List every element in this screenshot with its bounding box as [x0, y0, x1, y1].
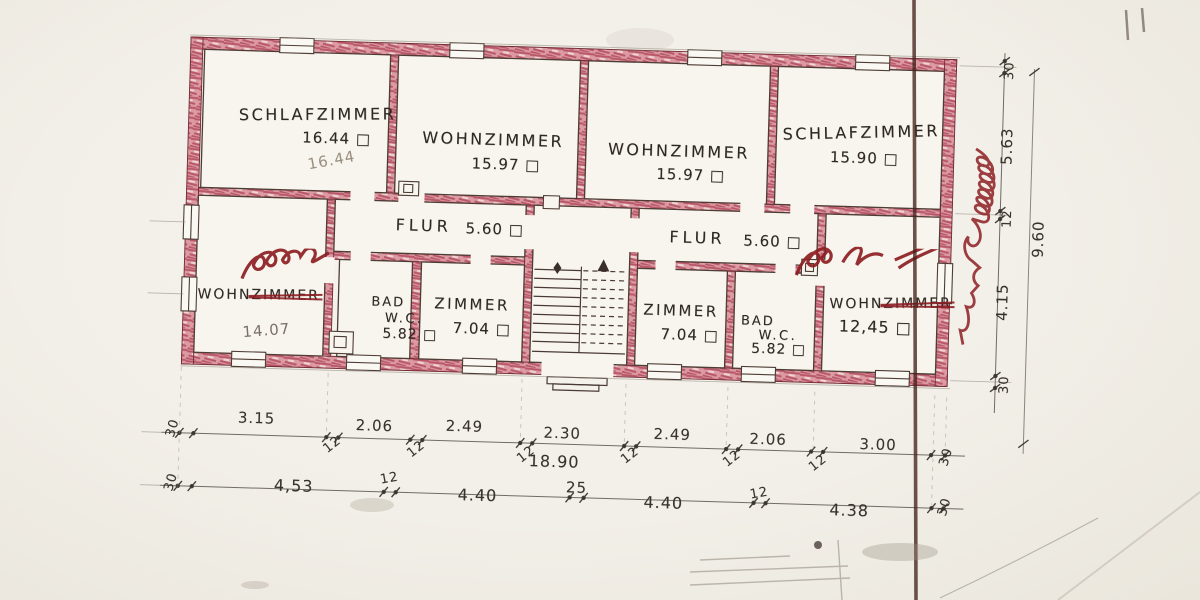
room-area-zimmer-1: 7.04 □ [452, 319, 511, 339]
floor-plan-svg [0, 0, 1200, 600]
crossed-out-text: ZIMMER [251, 287, 320, 304]
room-label-zimmer-1: ZIMMER [434, 294, 510, 314]
room-area-bad-1: 5.82 □ [382, 326, 437, 344]
crossed-out-text: ZIMMER [883, 296, 952, 312]
handwritten-red-script [238, 246, 339, 289]
dim-right-2: 12 [1000, 209, 1016, 228]
room-area-bad-2: 5.82 □ [751, 341, 806, 359]
dim-right-3: 4.15 [993, 283, 1012, 321]
room-label-wc-1: W.C. [385, 311, 424, 327]
dim-row1-13: 3.00 [859, 435, 897, 454]
dim-row1-total: 18.90 [528, 451, 579, 471]
dim-row2-1: 4,53 [274, 476, 314, 496]
room-label-schlafzimmer-2: SCHLAFZIMMER [782, 121, 940, 144]
room-area-schlafzimmer-2: 15.90 □ [830, 148, 899, 168]
room-area-wohnzimmer-1: 15.97 □ [471, 154, 540, 174]
room-label-flur-1: FLUR [395, 215, 452, 236]
dim-row1-9: 2.49 [653, 425, 691, 444]
scanned-floor-plan: SCHLAFZIMMER 16.44 □ 16.44 WOHNZIMMER 15… [0, 0, 1200, 600]
dim-right-total: 9.60 [1029, 220, 1048, 258]
room-area-flur-1: 5.60 □ [465, 219, 524, 239]
dim-row2-7: 4.38 [829, 500, 869, 520]
room-area-wohnzimmer-2: 15.97 □ [656, 165, 725, 185]
dim-row1-3: 2.06 [355, 416, 393, 435]
entrance-step [553, 384, 599, 391]
room-label-zimmer-2: ZIMMER [643, 301, 719, 321]
room-area-zimmer-2: 7.04 □ [660, 325, 719, 345]
dim-row1-5: 2.49 [445, 417, 483, 436]
room-area-schlafzimmer-1: 16.44 □ [302, 128, 371, 148]
dim-right-0: 30 [1002, 61, 1018, 80]
dim-right-4: 30 [997, 375, 1013, 394]
dim-row2-5: 4.40 [643, 493, 683, 513]
dim-row2-3: 4.40 [457, 485, 497, 505]
dim-right-1: 5.63 [997, 127, 1016, 165]
room-label-wohnzimmer-3: WOHNZIMMER [197, 286, 320, 303]
dim-row1-11: 2.06 [749, 430, 787, 449]
room-label-bad-1: BAD [371, 294, 405, 310]
dim-row1-1: 3.15 [238, 409, 276, 428]
room-area-flur-2: 5.60 □ [743, 231, 802, 251]
room-label-flur-2: FLUR [669, 227, 726, 248]
handwritten-red-script [794, 245, 955, 290]
dim-row2-4: 25 [566, 478, 588, 497]
room-area-wohnzimmer-3: 14.07 [242, 320, 291, 342]
room-label-schlafzimmer-1: SCHLAFZIMMER [239, 104, 396, 124]
dim-row1-7: 2.30 [543, 424, 581, 443]
plan-rotated-layer: SCHLAFZIMMER 16.44 □ 16.44 WOHNZIMMER 15… [0, 0, 1200, 600]
room-label-wohnzimmer-4: WOHNZIMMER [829, 296, 951, 313]
room-area-wohnzimmer-4: 12,45 □ [839, 316, 913, 337]
